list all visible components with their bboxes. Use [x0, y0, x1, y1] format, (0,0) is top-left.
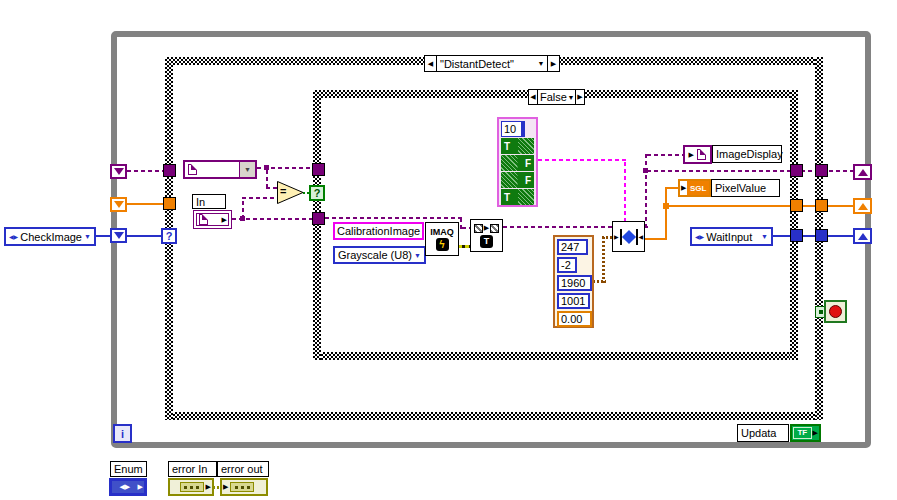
image-icon — [474, 224, 483, 233]
updata-boolean-terminal[interactable]: TF ▶ — [790, 424, 821, 442]
case-next-arrow[interactable]: ▶ — [575, 90, 584, 104]
enum-increment-icon: ◀▶ — [9, 233, 18, 240]
case-prev-arrow[interactable]: ◀ — [425, 56, 437, 71]
pixel-tunnel — [790, 199, 803, 212]
cluster-number[interactable]: 0.00 — [557, 311, 592, 327]
shift-up-icon — [858, 169, 868, 176]
cluster-wire-segment — [602, 237, 605, 283]
grayscale-ring-constant[interactable]: Grayscale (U8) ▼ — [333, 246, 426, 264]
error-out-terminal[interactable]: ▶ — [220, 478, 268, 496]
outer-case-selector[interactable]: ◀ "DistantDetect" ▼ ▶ — [424, 55, 560, 72]
pixel-value-wire-segment — [665, 187, 678, 189]
pixel-value-wire-segment — [665, 187, 667, 240]
image-wire-segment — [645, 154, 647, 228]
arrow-right-icon: ▶ — [484, 224, 489, 232]
error-in-terminal[interactable]: ▶ — [168, 478, 214, 496]
boolean-array-cell[interactable]: T — [501, 189, 534, 205]
in-path-control[interactable]: ▶ — [193, 210, 232, 229]
cluster-number[interactable]: 1001 — [557, 293, 590, 309]
calibration-image-string-constant[interactable]: CalibrationImage — [333, 222, 424, 240]
image-icon — [697, 149, 706, 160]
shift-up-icon — [858, 203, 868, 210]
cluster-number[interactable]: 247 — [557, 239, 588, 255]
image-display-terminal: ▶ — [683, 145, 712, 164]
checkimage-label: CheckImage — [20, 231, 84, 243]
diamond-icon — [621, 229, 635, 243]
path-browse-button[interactable]: ▼ — [239, 162, 255, 177]
enum-control-terminal[interactable]: ◀▶ ▶ — [109, 478, 147, 496]
in-label: In — [192, 194, 226, 209]
wire-junction — [240, 216, 245, 221]
wire-junction — [663, 203, 669, 209]
chevron-down-icon[interactable]: ▼ — [84, 233, 91, 240]
path-icon — [199, 214, 208, 225]
boolean-array-constant[interactable]: 10 T F F T — [497, 117, 538, 207]
bool-array-wire-segment — [538, 159, 626, 161]
wire-junction — [643, 168, 648, 173]
stop-icon — [829, 305, 842, 318]
shift-down-icon — [114, 201, 124, 208]
control-arrow-icon: ▶ — [206, 483, 211, 491]
path-constant-wire-segment — [266, 187, 277, 189]
shift-down-icon — [114, 168, 124, 175]
pixel-tunnel — [815, 199, 828, 212]
indicator-arrow-icon: ▶ — [223, 483, 228, 491]
shift-register-right-enum — [853, 228, 872, 244]
waitinput-label: WaitInput — [706, 231, 761, 243]
case-selector-label[interactable]: "DistantDetect" — [437, 56, 535, 71]
enum-tunnel — [815, 229, 828, 242]
updata-label: Updata — [737, 424, 789, 442]
enum-increment-icon: ◀▶ — [112, 483, 138, 491]
inner-case-selector-terminal: ? — [309, 185, 325, 201]
equals-glyph: = — [280, 185, 286, 197]
shift-register-left-enum — [110, 228, 127, 243]
waitinput-enum-constant[interactable]: ◀▶ WaitInput ▼ — [690, 227, 773, 246]
labview-block-diagram: ◀ "DistantDetect" ▼ ▶ ◀ False ▼ ▶ ◀▶ Che… — [0, 0, 897, 500]
path-tunnel — [312, 212, 325, 225]
case-next-arrow[interactable]: ▶ — [547, 56, 559, 71]
waitinput-wire-segment — [773, 235, 855, 237]
imaq-create-node[interactable]: IMAQ ϟ — [425, 222, 459, 256]
shift-register-right-image — [853, 164, 872, 180]
chevron-down-icon[interactable]: ▼ — [535, 56, 547, 71]
indicator-arrow-icon: ▶ — [689, 151, 694, 159]
boolean-array-cell[interactable]: T — [501, 138, 534, 154]
error-out-label: error out — [217, 461, 269, 477]
enum-label: Enum — [110, 461, 147, 477]
image-tunnel — [815, 164, 828, 177]
shift-register-left-pixel — [110, 197, 127, 212]
enum-increment-icon: ◀▶ — [695, 233, 704, 240]
path-constant-wire-segment — [266, 167, 268, 188]
shift-register-right-pixel — [853, 198, 872, 214]
imaq-node-title: IMAQ — [430, 227, 454, 237]
calibration-image-text: CalibrationImage — [337, 225, 420, 237]
path-constant[interactable]: ▼ — [183, 160, 257, 179]
shift-down-icon — [114, 232, 124, 239]
pixel-tunnel — [163, 197, 176, 210]
inner-case-selector[interactable]: ◀ False ▼ ▶ — [528, 89, 585, 105]
equal-node[interactable]: = — [277, 181, 304, 204]
path-icon — [188, 164, 197, 175]
grayscale-text: Grayscale (U8) — [338, 249, 414, 261]
arrow-right-icon: ▶ — [614, 233, 619, 240]
outer-case-selector-terminal: ? — [161, 228, 177, 244]
image-tunnel — [790, 164, 803, 177]
cluster-number[interactable]: 1960 — [557, 275, 592, 291]
iteration-i-label: i — [121, 428, 124, 440]
file-type-icon: T — [480, 235, 493, 248]
lightning-icon: ϟ — [436, 238, 449, 251]
image-shift-wire-segment — [127, 170, 165, 172]
bool-array-wire-segment — [624, 159, 626, 222]
loop-iteration-terminal: i — [113, 424, 132, 443]
number-cluster-constant[interactable]: 247 -2 1960 1001 0.00 — [553, 235, 594, 328]
control-arrow-icon: ▶ — [813, 429, 818, 437]
shift-register-left-image — [110, 164, 127, 179]
pixel-value-wire-segment — [644, 238, 667, 240]
pixel-value-label: PixelValue — [711, 179, 780, 197]
image-wire-segment — [503, 226, 613, 228]
image-display-label: ImageDisplay — [712, 145, 782, 163]
checkimage-wire-segment — [127, 235, 163, 237]
tunnel-dot — [819, 310, 823, 314]
chevron-down-icon[interactable]: ▼ — [567, 90, 575, 104]
tf-label: TF — [793, 427, 812, 439]
path-tunnel — [312, 163, 325, 176]
arrow-left-icon: ◀ — [639, 233, 644, 240]
sgl-type-label: SGL — [687, 184, 709, 193]
indicator-arrow-icon: ▶ — [680, 181, 687, 195]
error-cluster-icon — [180, 482, 204, 492]
cluster-number[interactable]: -2 — [557, 257, 577, 273]
checkimage-enum-constant[interactable]: ◀▶ CheckImage ▼ — [4, 227, 96, 246]
inner-case-border-bottom — [313, 352, 798, 360]
chevron-down-icon[interactable]: ▼ — [761, 233, 768, 240]
error-in-label: error In — [168, 461, 217, 477]
case-selector-label[interactable]: False — [538, 90, 567, 104]
boolean-array-cell[interactable]: F — [501, 172, 534, 188]
image-tunnel — [163, 164, 176, 177]
pixel-shift-wire-segment — [127, 203, 165, 205]
inner-case-border-right — [790, 90, 798, 360]
array-index[interactable]: 10 — [501, 121, 525, 137]
in-path-wire-segment — [242, 197, 277, 199]
image-wire-segment — [647, 154, 683, 156]
overlay-node[interactable]: ▶ ◀ — [612, 221, 645, 252]
error-cluster-icon — [230, 482, 254, 492]
shift-up-icon — [858, 233, 868, 240]
loop-conditional-terminal — [824, 300, 847, 323]
inner-case-border-left — [313, 90, 321, 360]
boolean-array-cell[interactable]: F — [501, 155, 534, 171]
image-icon — [490, 224, 499, 233]
in-path-wire-segment — [325, 217, 462, 219]
case-prev-arrow[interactable]: ◀ — [529, 90, 538, 104]
control-arrow-icon: ▶ — [222, 216, 227, 224]
control-arrow-icon: ▶ — [138, 483, 143, 491]
wire-junction — [264, 165, 269, 170]
enum-tunnel — [790, 229, 803, 242]
pixel-value-terminal: ▶ SGL — [678, 179, 711, 197]
outer-case-border-bottom — [165, 412, 823, 420]
chevron-down-icon[interactable]: ▼ — [414, 252, 421, 259]
imaq-readfile-node[interactable]: ▶ T — [470, 219, 503, 252]
